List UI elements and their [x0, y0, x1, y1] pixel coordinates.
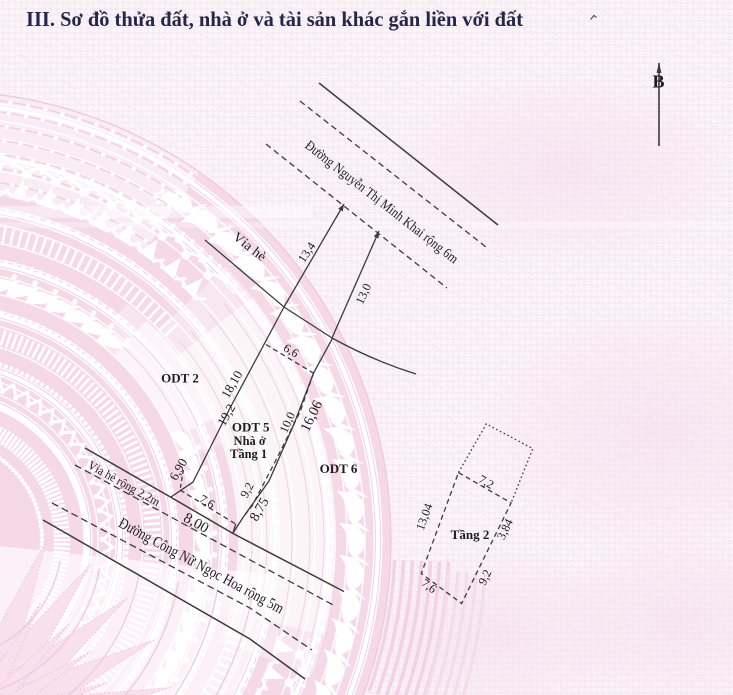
svg-text:B: B — [652, 72, 664, 92]
svg-text:ODT 6: ODT 6 — [320, 461, 358, 476]
svg-text:ODT 5: ODT 5 — [232, 420, 270, 435]
svg-text:III. Sơ đồ thửa đất, nhà ở và: III. Sơ đồ thửa đất, nhà ở và tài sản kh… — [26, 7, 523, 31]
svg-text:Tầng 2: Tầng 2 — [451, 527, 490, 542]
svg-text:Tầng 1: Tầng 1 — [230, 447, 267, 461]
svg-text:ODT 2: ODT 2 — [161, 371, 199, 386]
